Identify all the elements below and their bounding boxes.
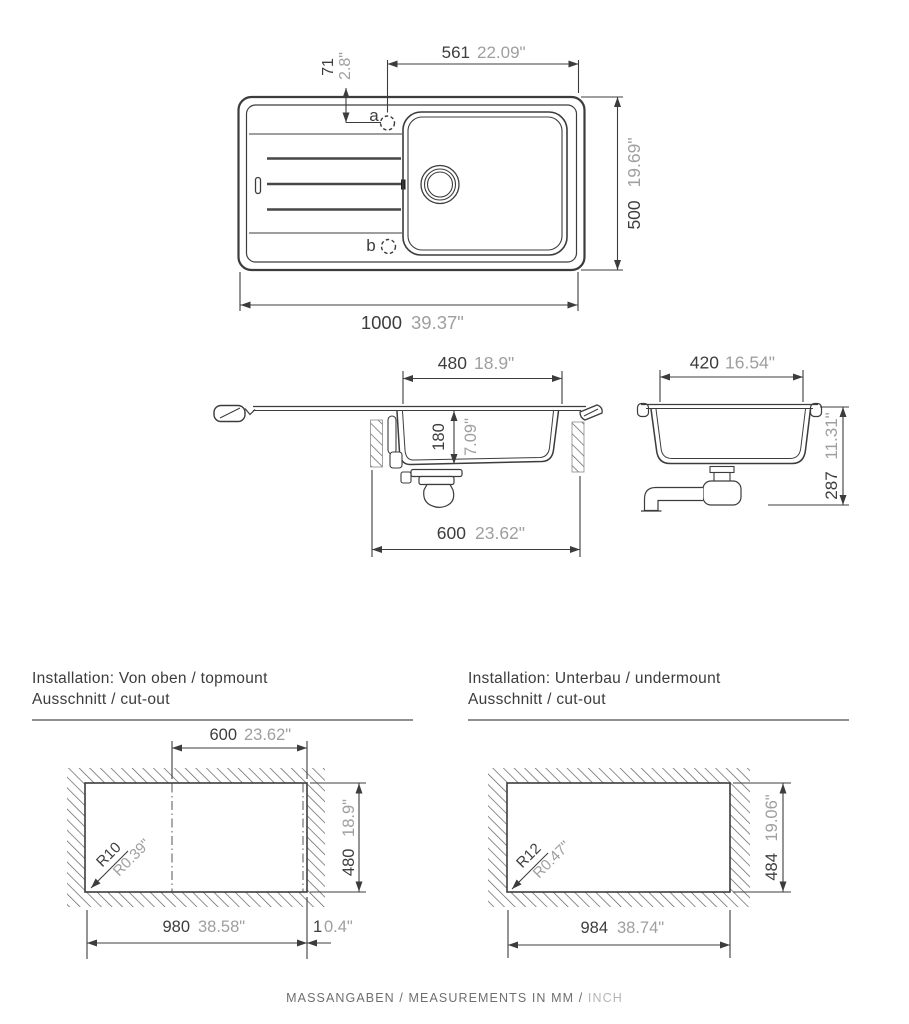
topmount-divider bbox=[32, 719, 413, 721]
dim-287-mm: 287 bbox=[822, 471, 841, 499]
topmount-drawing: 600 23.62" 480 18.9" 980 38.58" 1 0.4" bbox=[67, 726, 366, 959]
dim-edge-in: 0.4" bbox=[324, 918, 353, 936]
dim-287-in: 11.31" bbox=[822, 412, 841, 459]
drain-trap-bell bbox=[424, 485, 454, 508]
bowl-section bbox=[651, 409, 811, 464]
end-view: 420 16.54" 287 11.31" bbox=[638, 353, 850, 512]
dim-500-mm: 500 bbox=[624, 200, 644, 229]
undermount-divider bbox=[468, 719, 849, 721]
end-drain-assembly bbox=[641, 467, 741, 512]
dim-480: 480 18.9" bbox=[403, 353, 562, 404]
dim-180-in: 7.09" bbox=[462, 418, 480, 456]
side-view: 480 18.9" 180 7.09" 600 23.62" bbox=[214, 353, 602, 557]
side-drain-assembly bbox=[388, 416, 462, 507]
dim-1000: 1000 39.37" bbox=[240, 272, 578, 333]
footer-mm-text: MASSANGABEN / MEASUREMENTS IN MM / bbox=[286, 991, 583, 1005]
dim-480-cutout-label: 480 18.9" bbox=[340, 799, 358, 876]
waste-pipe-elbow bbox=[645, 488, 704, 511]
dim-561-mm: 561 bbox=[442, 43, 470, 62]
dim-287-label: 287 11.31" bbox=[822, 412, 841, 499]
dim-980-in: 38.58" bbox=[198, 918, 245, 936]
topmount-title: Installation: Von oben / topmount bbox=[32, 668, 268, 689]
dim-500-in: 19.69" bbox=[624, 137, 644, 187]
dim-1000-mm: 1000 bbox=[361, 312, 402, 333]
tap-hole-a bbox=[381, 116, 395, 130]
tap-hole-b bbox=[382, 240, 396, 254]
dim-484-mm: 484 bbox=[763, 853, 781, 881]
countertop-section-left bbox=[371, 420, 383, 467]
dim-180-mm: 180 bbox=[430, 423, 448, 451]
bowl-top bbox=[403, 112, 567, 255]
drain-outer-ring bbox=[421, 166, 459, 204]
undermount-title: Installation: Unterbau / undermount bbox=[468, 668, 721, 689]
dim-480-cutout-in: 18.9" bbox=[340, 799, 358, 837]
dim-71-in: 2.8" bbox=[337, 52, 354, 80]
topmount-subtitle: Ausschnitt / cut-out bbox=[32, 689, 268, 710]
rim-end-left bbox=[638, 404, 649, 417]
undermount-subtitle: Ausschnitt / cut-out bbox=[468, 689, 721, 710]
drawing-svg: a b 561 22.09" 71 2.8" 500 19.69" bbox=[0, 0, 909, 1024]
dim-500: 500 19.69" bbox=[581, 97, 644, 270]
dim-484-cutout-label: 484 19.06" bbox=[763, 794, 781, 880]
top-view: a b 561 22.09" 71 2.8" 500 19.69" bbox=[239, 43, 645, 333]
dim-980-mm: 980 bbox=[162, 918, 190, 936]
footer-inch-text: INCH bbox=[588, 991, 623, 1005]
dim-edge-overlap: 1 0.4" bbox=[307, 918, 353, 943]
topmount-heading: Installation: Von oben / topmount Aussch… bbox=[32, 668, 268, 710]
overflow-slot bbox=[256, 178, 261, 194]
trap-body bbox=[703, 481, 741, 505]
dim-480-in: 18.9" bbox=[474, 353, 514, 373]
dim-484-in: 19.06" bbox=[763, 794, 781, 841]
dim-561-in: 22.09" bbox=[477, 43, 526, 62]
dim-edge-mm: 1 bbox=[313, 918, 322, 936]
dim-1000-in: 39.37" bbox=[411, 312, 464, 333]
dim-480-cutout-mm: 480 bbox=[340, 849, 358, 877]
undermount-heading: Installation: Unterbau / undermount Auss… bbox=[468, 668, 721, 710]
drain-mid-ring bbox=[425, 169, 456, 200]
dim-561: 561 22.09" bbox=[388, 43, 579, 113]
overflow-pipe bbox=[388, 416, 396, 454]
dim-71-mm: 71 bbox=[320, 58, 337, 76]
measurements-footer: MASSANGABEN / MEASUREMENTS IN MM / INCH bbox=[0, 991, 909, 1005]
dim-984-cutout: 984 38.74" bbox=[508, 910, 730, 958]
end-rim bbox=[638, 404, 822, 417]
undermount-drawing: 484 19.06" 984 38.74" R12 R0.47" bbox=[488, 768, 791, 958]
dim-984-in: 38.74" bbox=[617, 919, 664, 937]
drainboard bbox=[249, 134, 406, 233]
dim-180: 180 7.09" bbox=[430, 411, 480, 464]
dim-600-side-in: 23.62" bbox=[475, 523, 525, 543]
sink-technical-drawing: a b 561 22.09" 71 2.8" 500 19.69" bbox=[0, 0, 909, 1024]
countertop-section-right bbox=[572, 422, 584, 472]
dim-500-label: 500 19.69" bbox=[624, 137, 644, 229]
rim-end-right bbox=[811, 404, 822, 417]
dim-600-cutout-mm: 600 bbox=[209, 726, 237, 744]
tap-hole-b-label: b bbox=[366, 236, 375, 255]
dim-420-in: 16.54" bbox=[725, 353, 775, 373]
dim-420-mm: 420 bbox=[690, 353, 719, 373]
drain-inner-ring bbox=[428, 172, 453, 197]
dim-420: 420 16.54" bbox=[660, 353, 803, 403]
dim-600-side-mm: 600 bbox=[437, 523, 466, 543]
dim-480-mm: 480 bbox=[438, 353, 467, 373]
dim-600-cutout-in: 23.62" bbox=[244, 726, 291, 744]
drainboard-grooves bbox=[267, 159, 402, 210]
dim-984-mm: 984 bbox=[580, 919, 608, 937]
side-rim bbox=[214, 405, 602, 422]
